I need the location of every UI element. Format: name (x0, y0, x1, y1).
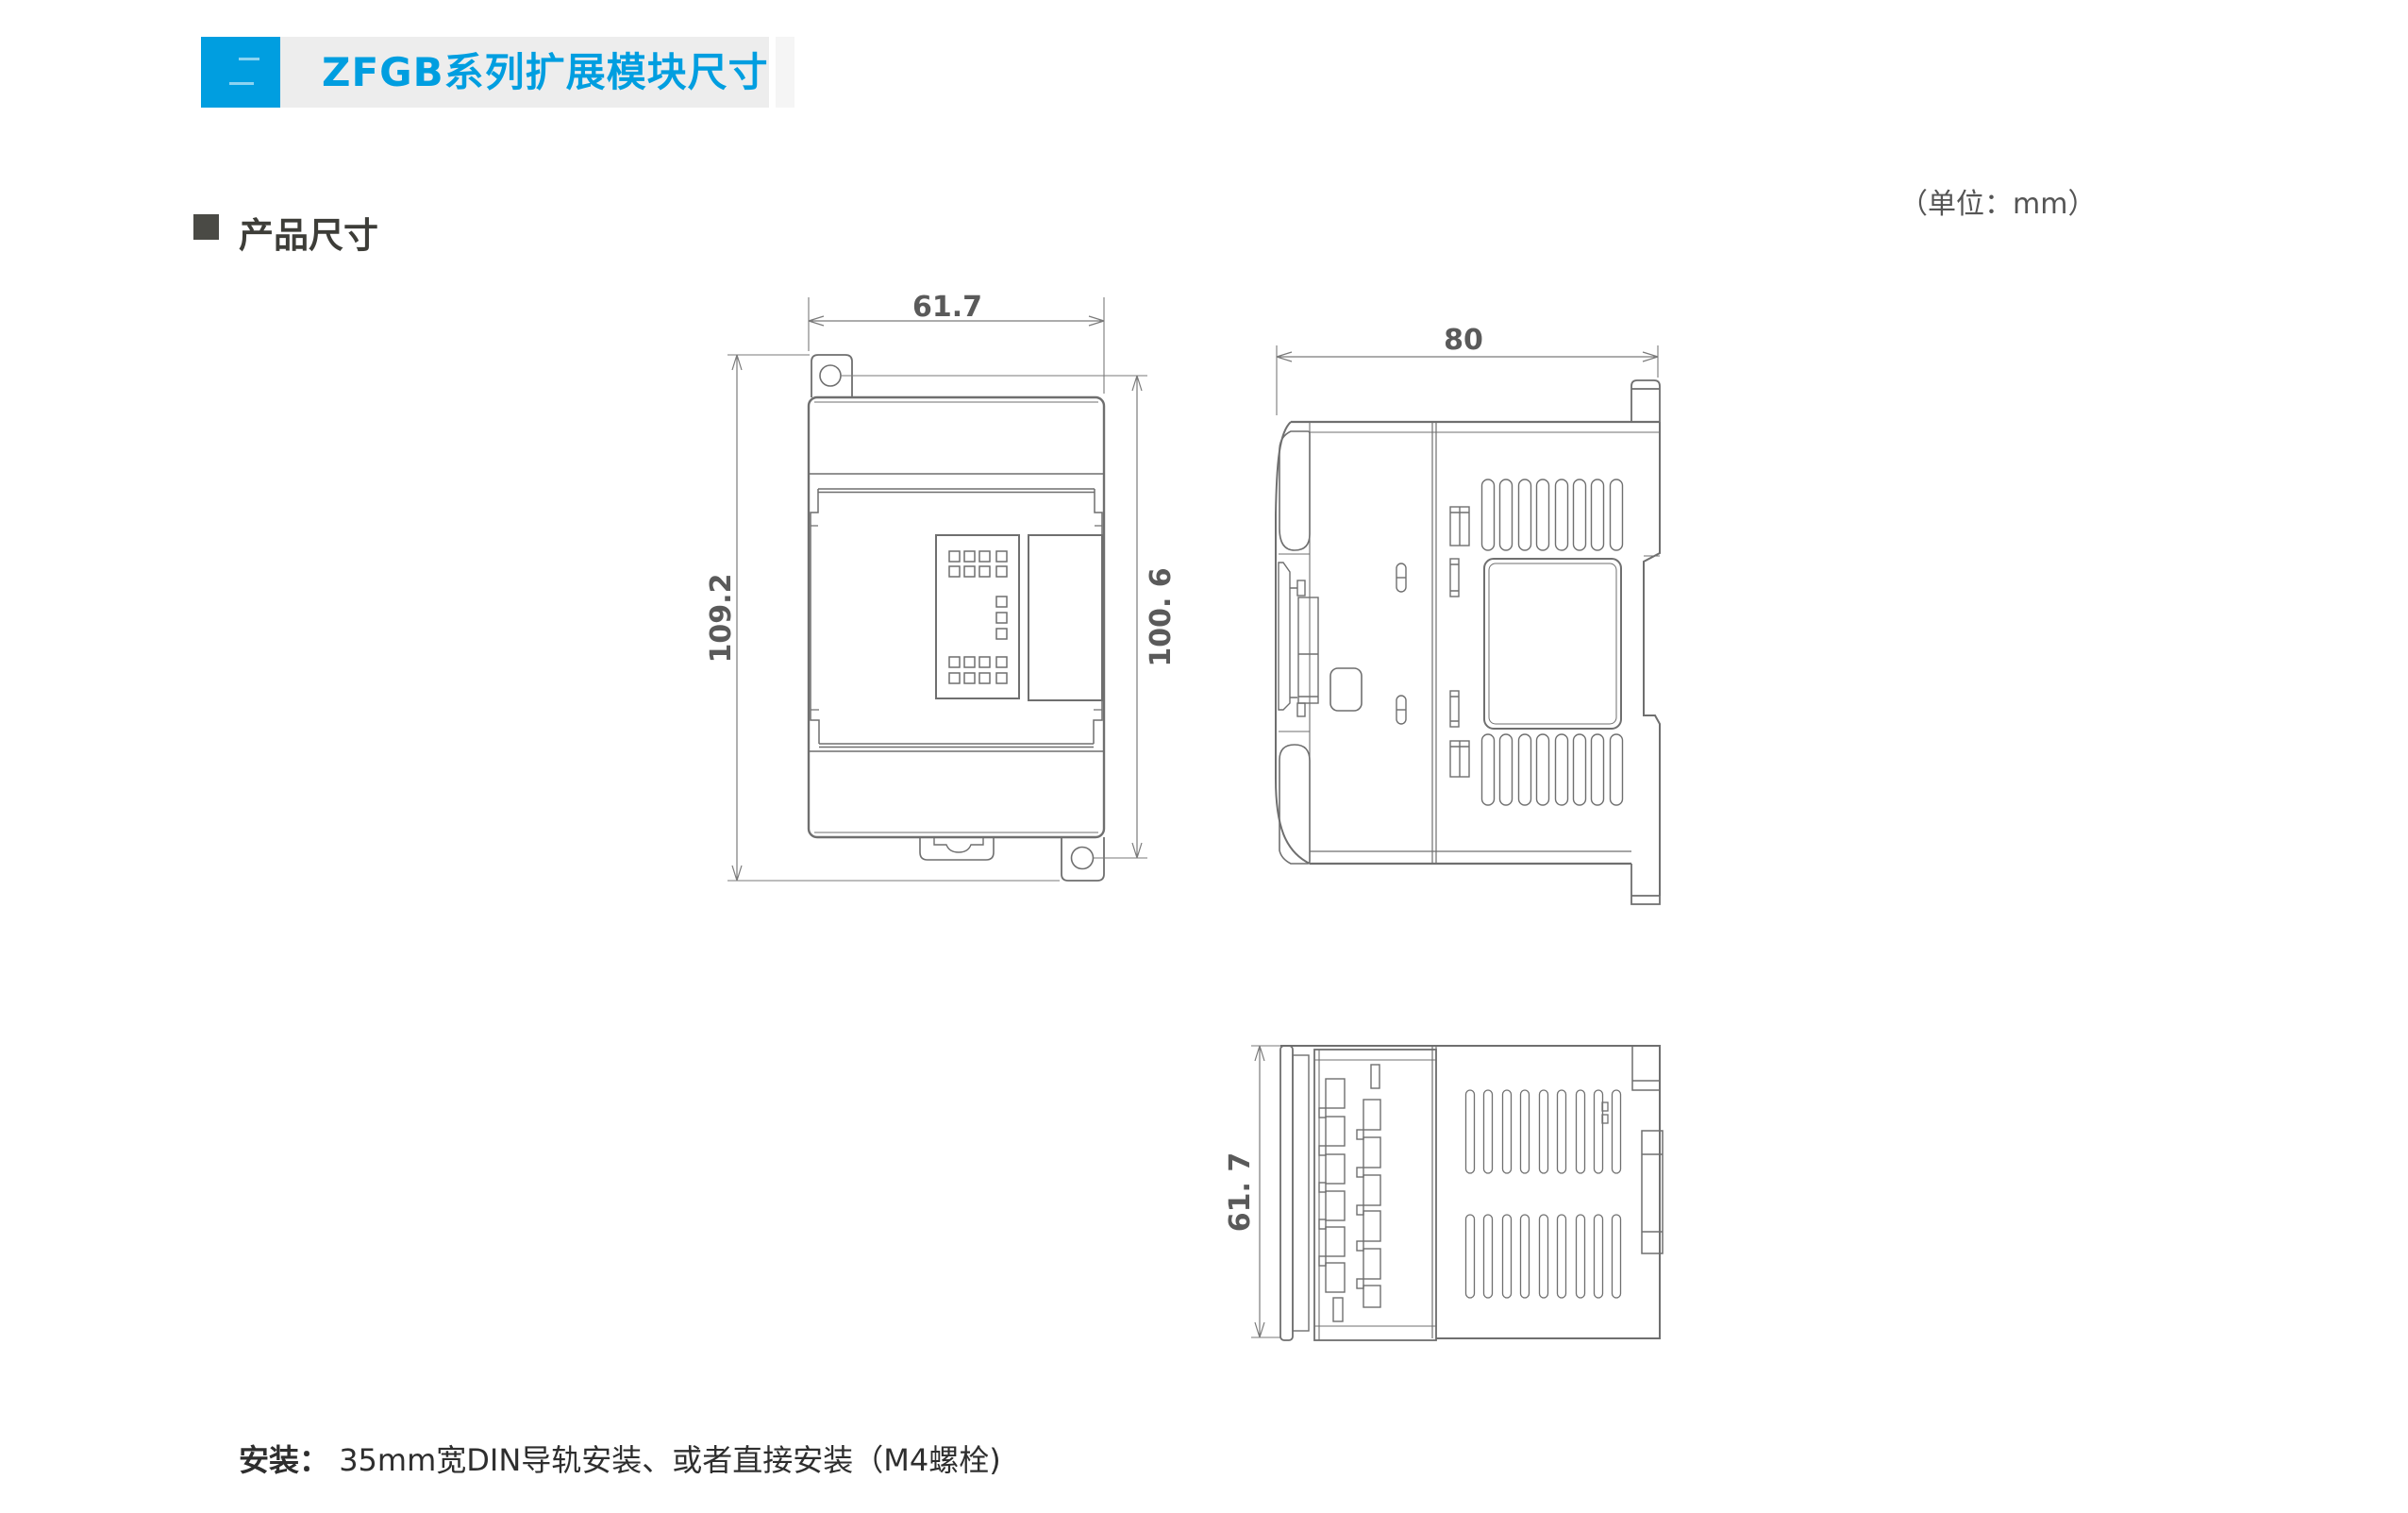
svg-text:61.7: 61.7 (912, 291, 982, 324)
svg-text:100. 6: 100. 6 (1145, 567, 1178, 666)
bottom-terminal-housing (1314, 1050, 1436, 1340)
module-icon-glyph (229, 82, 254, 85)
side-din-groove (1644, 422, 1660, 896)
dim-bottom-width: 61. 7 (1224, 1046, 1280, 1337)
front-body-outline (809, 397, 1104, 837)
side-bezel-pad-top (1279, 431, 1310, 550)
front-bottom-mounting-hole (1072, 848, 1094, 869)
side-latch-button (1330, 668, 1362, 711)
side-top-tab (1631, 380, 1660, 422)
dim-front-hole-pitch: 100. 6 (841, 376, 1178, 858)
mounting-note-label: 安装： (239, 1442, 329, 1478)
svg-text:80: 80 (1444, 324, 1483, 357)
bottom-view-drawing: 61. 7 (1217, 1019, 1708, 1387)
page-title: ZFGB系列扩展模块尺寸 (322, 37, 769, 108)
side-view-drawing: 80 (1255, 274, 1698, 934)
units-note: （单位：mm） (1899, 180, 2096, 222)
side-din-tail (1631, 864, 1660, 904)
front-bottom-mounting-tab (1062, 837, 1104, 881)
side-expansion-connector (1279, 563, 1318, 716)
side-vent-slots-top (1482, 479, 1623, 550)
bottom-vent-slots-top (1466, 1090, 1621, 1173)
side-rear-clips (1450, 507, 1469, 777)
title-bar-tail (776, 37, 794, 108)
dim-front-width: 61.7 (809, 291, 1104, 394)
dim-side-depth: 80 (1277, 324, 1658, 415)
bottom-terminals-col-b (1357, 1065, 1380, 1307)
section-marker-square (193, 214, 219, 240)
module-icon-glyph (239, 58, 259, 60)
front-expansion-cover (1028, 535, 1102, 700)
bottom-vent-slots-bottom (1466, 1215, 1621, 1298)
mounting-note: 安装： 35mm宽DIN导轨安装、或者直接安装（M4螺栓) (239, 1437, 1001, 1480)
side-vent-slots-bottom (1482, 734, 1623, 805)
side-pin-slots (1396, 563, 1406, 724)
front-view-drawing: 61.7 109.2 100. 6 (698, 274, 1189, 934)
bottom-top-tab (1632, 1046, 1659, 1090)
side-front-profile (1276, 422, 1310, 864)
bottom-terminals-col-a (1319, 1079, 1345, 1321)
bottom-front-cap (1280, 1046, 1293, 1340)
module-icon (201, 37, 280, 108)
front-terminal-squares (949, 551, 1007, 683)
mounting-note-text: 35mm宽DIN导轨安装、或者直接安装（M4螺栓) (339, 1442, 1001, 1478)
section-title: 产品尺寸 (239, 207, 378, 258)
datasheet-page: ZFGB系列扩展模块尺寸 产品尺寸 （单位：mm） (0, 0, 2408, 1513)
front-top-mounting-hole (820, 365, 841, 386)
side-nameplate (1484, 559, 1621, 729)
svg-text:61. 7: 61. 7 (1224, 1152, 1257, 1232)
svg-text:109.2: 109.2 (705, 574, 738, 664)
side-bezel-pad-bottom (1279, 745, 1310, 864)
